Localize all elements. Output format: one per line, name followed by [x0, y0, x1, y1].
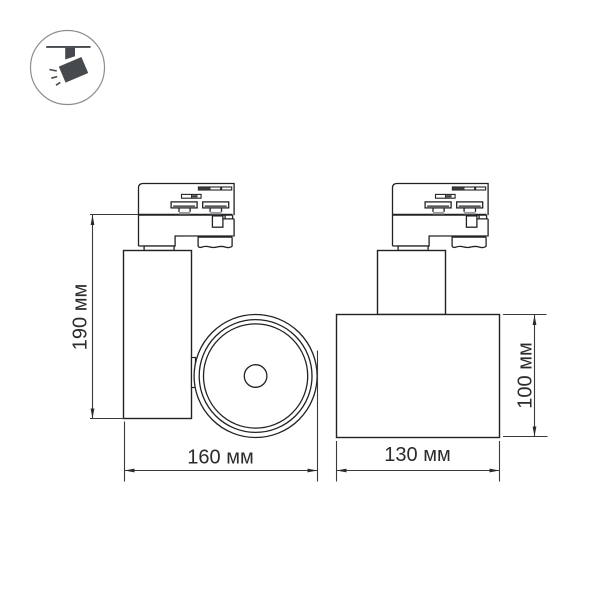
svg-text:190 мм: 190 мм	[69, 284, 91, 350]
svg-text:100 мм: 100 мм	[515, 342, 537, 408]
svg-text:160 мм: 160 мм	[187, 447, 253, 469]
svg-text:130 мм: 130 мм	[384, 444, 450, 466]
